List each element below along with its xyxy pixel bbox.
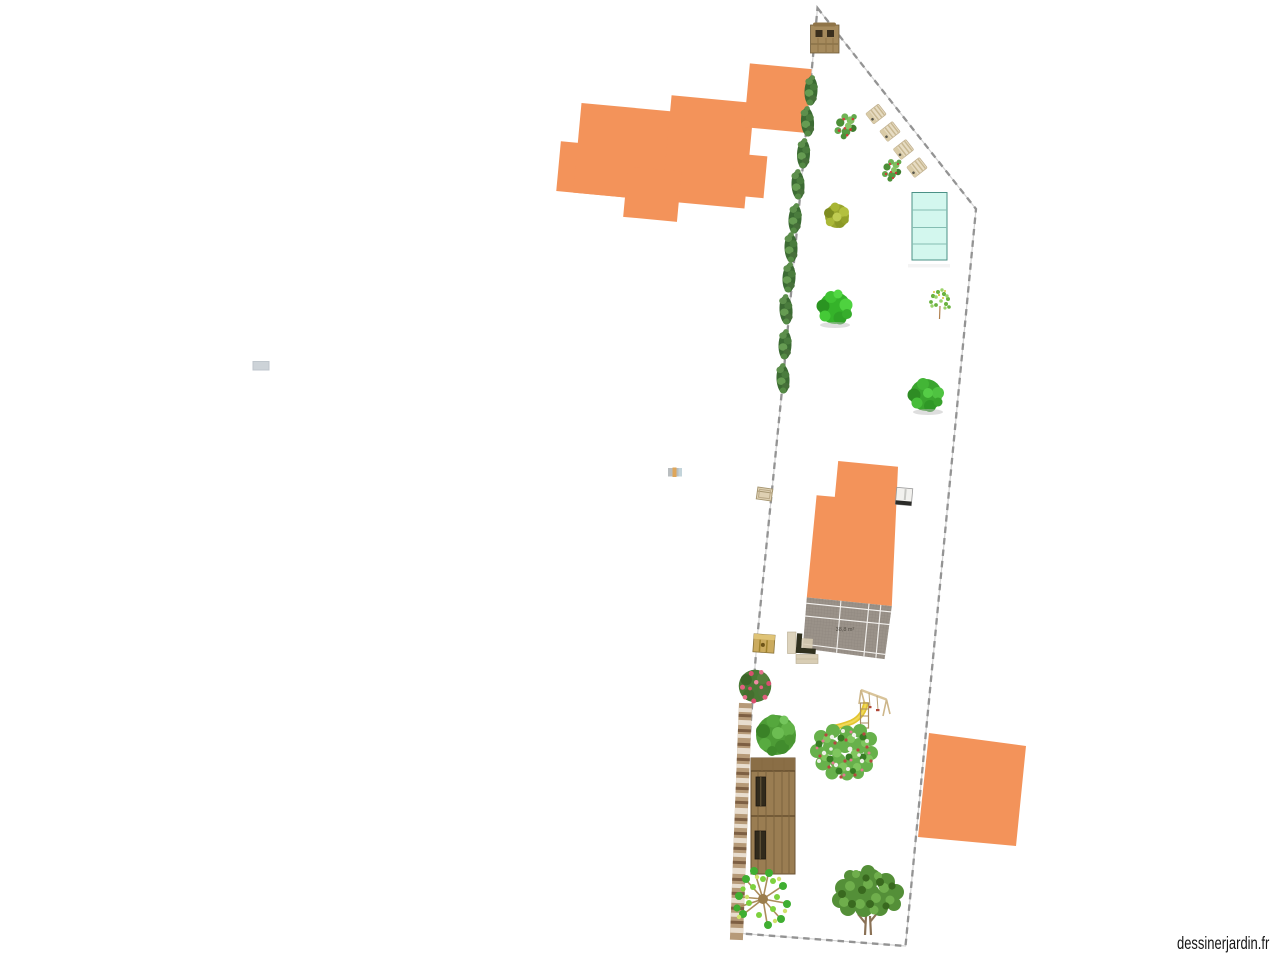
svg-text:dessinerjardin.fr: dessinerjardin.fr (1177, 933, 1269, 953)
svg-text:38,8 m²: 38,8 m² (836, 627, 855, 633)
